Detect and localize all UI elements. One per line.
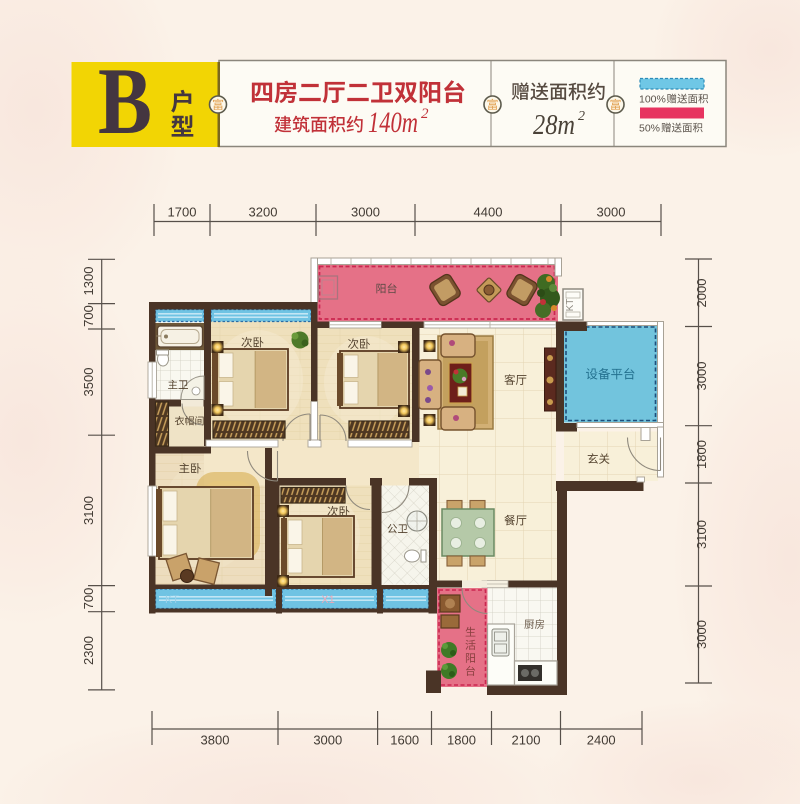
svg-text:50%: 50% — [639, 123, 660, 135]
svg-text:3800: 3800 — [201, 733, 230, 748]
svg-text:1300: 1300 — [81, 267, 96, 296]
svg-text:3000: 3000 — [694, 362, 709, 391]
svg-text:2000: 2000 — [694, 279, 709, 308]
svg-text:700: 700 — [81, 305, 96, 327]
svg-text:2: 2 — [421, 106, 429, 122]
svg-text:1700: 1700 — [168, 205, 197, 220]
svg-text:3100: 3100 — [694, 520, 709, 549]
svg-text:3000: 3000 — [351, 205, 380, 220]
svg-text:KT: KT — [565, 299, 576, 312]
svg-text:1800: 1800 — [694, 440, 709, 469]
svg-text:100%: 100% — [639, 94, 666, 106]
svg-text:3000: 3000 — [597, 205, 626, 220]
svg-text:2400: 2400 — [587, 733, 616, 748]
svg-text:28m: 28m — [533, 109, 575, 141]
svg-text:1800: 1800 — [447, 733, 476, 748]
svg-text:2: 2 — [578, 109, 585, 124]
svg-text:3100: 3100 — [81, 496, 96, 525]
svg-text:KT: KT — [165, 594, 179, 606]
svg-text:B: B — [98, 48, 152, 154]
svg-text:3000: 3000 — [694, 620, 709, 649]
svg-text:4400: 4400 — [474, 205, 503, 220]
svg-text:140m: 140m — [368, 106, 418, 139]
svg-text:700: 700 — [81, 588, 96, 610]
svg-text:1600: 1600 — [390, 733, 419, 748]
svg-text:3500: 3500 — [81, 368, 96, 397]
svg-text:3200: 3200 — [249, 205, 278, 220]
svg-text:2100: 2100 — [512, 733, 541, 748]
svg-text:2300: 2300 — [81, 636, 96, 665]
svg-text:3000: 3000 — [313, 733, 342, 748]
svg-text:X1: X1 — [321, 594, 334, 606]
